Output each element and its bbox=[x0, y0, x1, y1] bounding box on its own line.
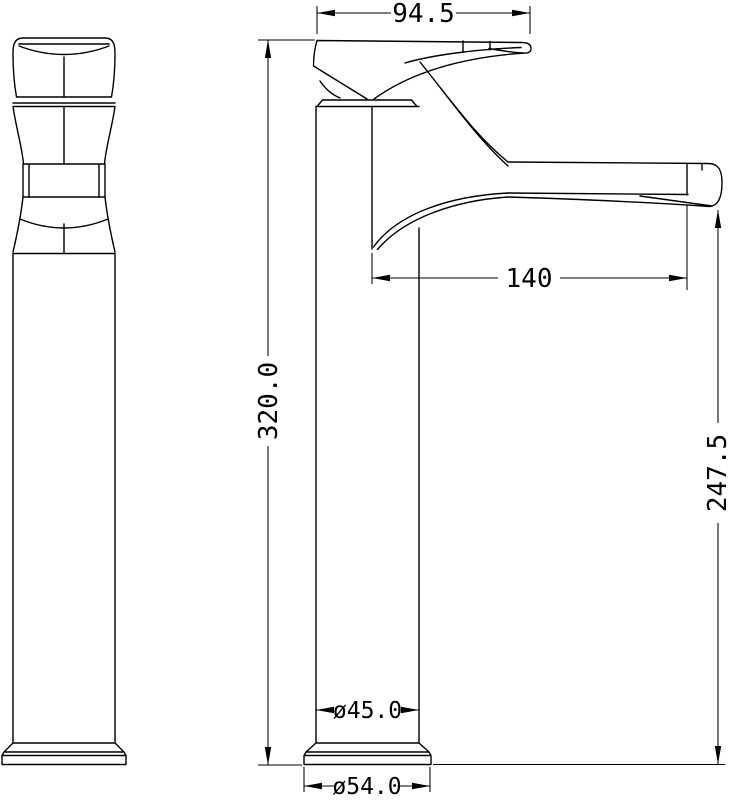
dim-arrow-left bbox=[317, 10, 335, 16]
dim-arrow-right bbox=[669, 275, 687, 281]
front-view-column bbox=[13, 254, 115, 744]
faucet-technical-drawing: 94.5 140 320.0 247.5 ø45.0 ø54.0 bbox=[0, 0, 735, 800]
dim-arrow-bottom bbox=[265, 747, 271, 765]
dimension-label-spout-reach: 140 bbox=[506, 264, 553, 294]
dim-arrow-right bbox=[512, 10, 530, 16]
side-view-body bbox=[316, 62, 508, 743]
dim-arrow-right bbox=[412, 783, 430, 789]
dimension-label-base-diameter: ø54.0 bbox=[332, 774, 401, 800]
dimension-label-overall-height: 320.0 bbox=[254, 362, 284, 440]
dim-arrow-bottom bbox=[715, 746, 721, 764]
front-view-handle bbox=[13, 38, 115, 97]
side-view bbox=[304, 41, 722, 765]
dimension-label-handle-length: 94.5 bbox=[392, 0, 455, 29]
dim-arrow-left bbox=[372, 275, 390, 281]
dim-arrow-right bbox=[401, 707, 419, 713]
side-view-spout bbox=[508, 162, 722, 207]
dim-arrow-top bbox=[715, 210, 721, 228]
side-view-base bbox=[304, 743, 431, 765]
side-view-handle bbox=[314, 41, 532, 100]
dimension-body-diameter: ø45.0 bbox=[316, 698, 419, 724]
side-view-ring bbox=[316, 100, 419, 107]
dim-arrow-left bbox=[316, 707, 334, 713]
dimension-handle-length: 94.5 bbox=[317, 0, 530, 34]
front-view bbox=[2, 38, 126, 765]
dimension-label-spout-height: 247.5 bbox=[703, 434, 733, 512]
technical-drawing-page: 94.5 140 320.0 247.5 ø45.0 ø54.0 bbox=[0, 0, 735, 800]
dimension-label-body-diameter: ø45.0 bbox=[333, 698, 402, 724]
front-view-body bbox=[13, 103, 115, 254]
dim-arrow-left bbox=[304, 783, 322, 789]
dimension-base-diameter: ø54.0 bbox=[304, 767, 430, 800]
front-view-base bbox=[2, 743, 126, 765]
dimension-overall-height: 320.0 bbox=[254, 40, 315, 765]
dim-arrow-top bbox=[265, 40, 271, 58]
dimension-spout-height: 247.5 bbox=[433, 210, 733, 765]
